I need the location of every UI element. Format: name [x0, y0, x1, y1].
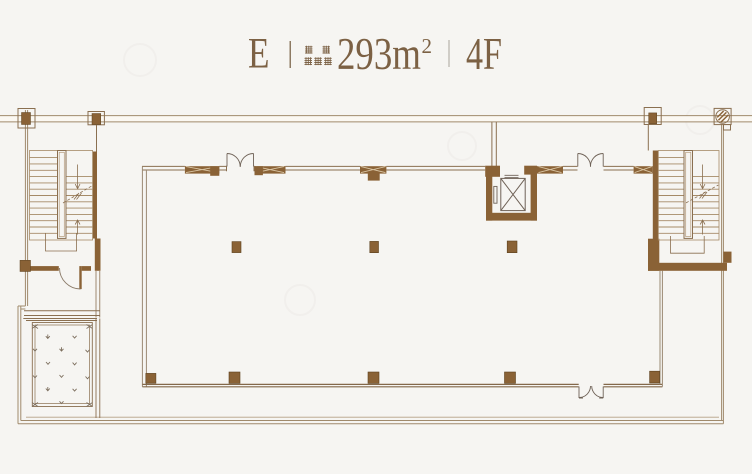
svg-text:4F: 4F — [466, 29, 502, 79]
svg-text:E: E — [248, 31, 270, 78]
svg-text:2: 2 — [422, 34, 433, 58]
svg-text:293m: 293m — [337, 29, 421, 79]
